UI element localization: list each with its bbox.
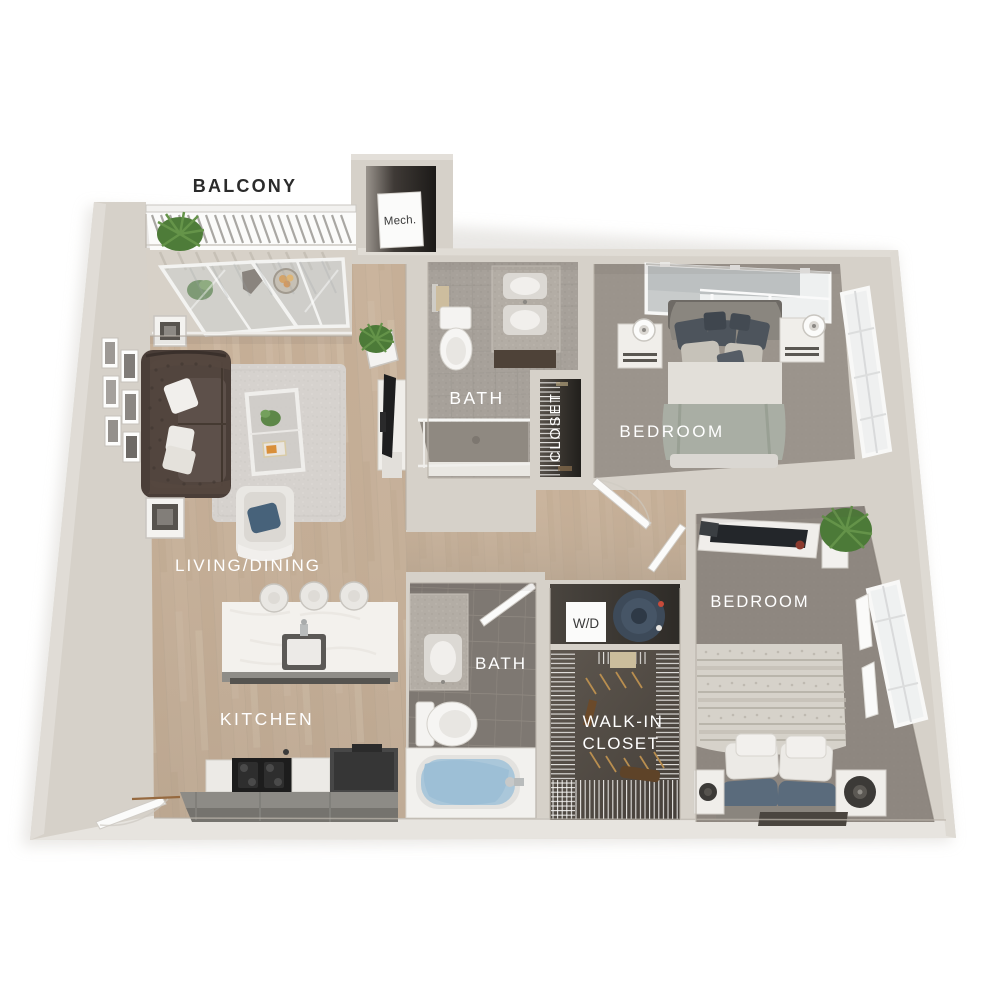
svg-text:BATH: BATH bbox=[449, 388, 504, 408]
svg-text:KITCHEN: KITCHEN bbox=[220, 709, 314, 729]
svg-text:WALK-IN: WALK-IN bbox=[583, 712, 664, 731]
svg-text:Mech.: Mech. bbox=[384, 214, 417, 228]
svg-text:BEDROOM: BEDROOM bbox=[710, 593, 809, 611]
svg-text:LIVING/DINING: LIVING/DINING bbox=[175, 556, 321, 575]
svg-text:CLOSET: CLOSET bbox=[582, 734, 659, 753]
svg-text:BEDROOM: BEDROOM bbox=[619, 422, 724, 441]
svg-text:CLOSET: CLOSET bbox=[548, 392, 564, 462]
svg-text:BATH: BATH bbox=[475, 654, 527, 673]
svg-text:W/D: W/D bbox=[573, 616, 599, 631]
svg-text:BALCONY: BALCONY bbox=[193, 176, 297, 196]
